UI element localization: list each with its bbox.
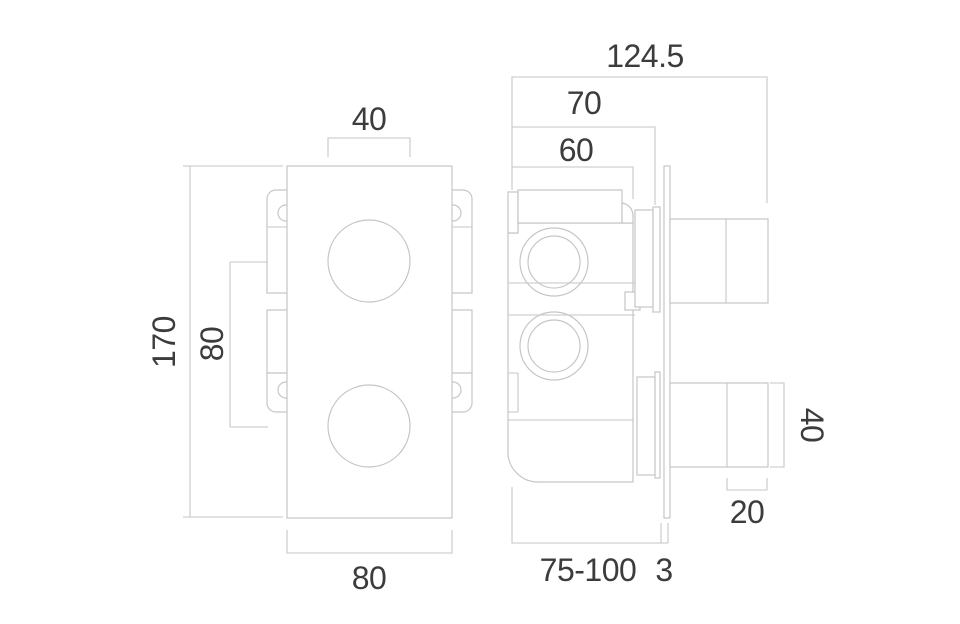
dim-line bbox=[512, 77, 767, 203]
technical-drawing: 40 170 80 80 bbox=[0, 0, 960, 624]
dim-front-width: 80 bbox=[287, 530, 452, 596]
dim-side-overall-depth: 124.5 bbox=[512, 38, 767, 203]
side-view: 124.5 70 60 40 20 75-100 3 bbox=[508, 38, 830, 588]
dim-side-plate-thickness: 3 bbox=[655, 523, 672, 588]
lower-handle-hole bbox=[328, 385, 410, 467]
dim-label-side-body-depth: 60 bbox=[559, 132, 594, 168]
lower-cartridge-flange bbox=[655, 372, 660, 478]
dim-line bbox=[512, 487, 661, 543]
dim-label-side-handle-height: 40 bbox=[794, 408, 830, 443]
drawing-canvas: 40 170 80 80 bbox=[0, 0, 960, 624]
lower-cartridge-housing bbox=[637, 377, 655, 475]
dim-label-side-plate-thickness: 3 bbox=[655, 552, 672, 588]
dim-label-front-hole-spacing: 80 bbox=[194, 327, 230, 362]
front-view: 40 170 80 80 bbox=[146, 101, 472, 596]
dim-label-front-width: 80 bbox=[352, 560, 387, 596]
dim-label-front-height: 170 bbox=[146, 316, 182, 368]
dim-side-handle-height: 40 bbox=[770, 383, 830, 467]
dim-front-hole-spacing: 80 bbox=[194, 262, 268, 427]
upper-cartridge-flange bbox=[653, 207, 660, 312]
dim-label-side-handle-cap-depth: 20 bbox=[730, 494, 765, 530]
dim-label-side-cartridge-depth: 70 bbox=[567, 85, 602, 121]
dim-label-side-installation-depth: 75-100 bbox=[540, 552, 637, 588]
lower-handle-body bbox=[670, 383, 768, 467]
lower-handle bbox=[670, 383, 768, 467]
bracket-edge-top bbox=[508, 192, 518, 233]
dim-line bbox=[770, 383, 784, 467]
dim-front-hole-diameter: 40 bbox=[328, 101, 410, 157]
upper-cartridge-housing bbox=[635, 210, 653, 307]
upper-handle-body bbox=[670, 219, 768, 303]
wall-plate-edge bbox=[664, 166, 670, 518]
dim-line bbox=[230, 262, 268, 427]
inlet-pipe-end bbox=[622, 203, 633, 223]
dim-label-front-hole-diameter: 40 bbox=[352, 101, 387, 137]
dim-line bbox=[727, 478, 767, 490]
dim-line bbox=[661, 523, 668, 543]
valve-body bbox=[508, 223, 633, 482]
upper-handle bbox=[670, 219, 768, 303]
dim-line bbox=[328, 138, 410, 157]
dim-side-handle-cap-depth: 20 bbox=[727, 478, 767, 530]
dim-line bbox=[287, 530, 452, 553]
dim-label-side-overall-depth: 124.5 bbox=[606, 38, 684, 74]
inlet-pipe bbox=[518, 190, 622, 223]
dim-side-installation-depth: 75-100 bbox=[512, 487, 661, 588]
upper-handle-hole bbox=[328, 220, 410, 302]
dim-side-body-depth: 60 bbox=[512, 132, 633, 199]
